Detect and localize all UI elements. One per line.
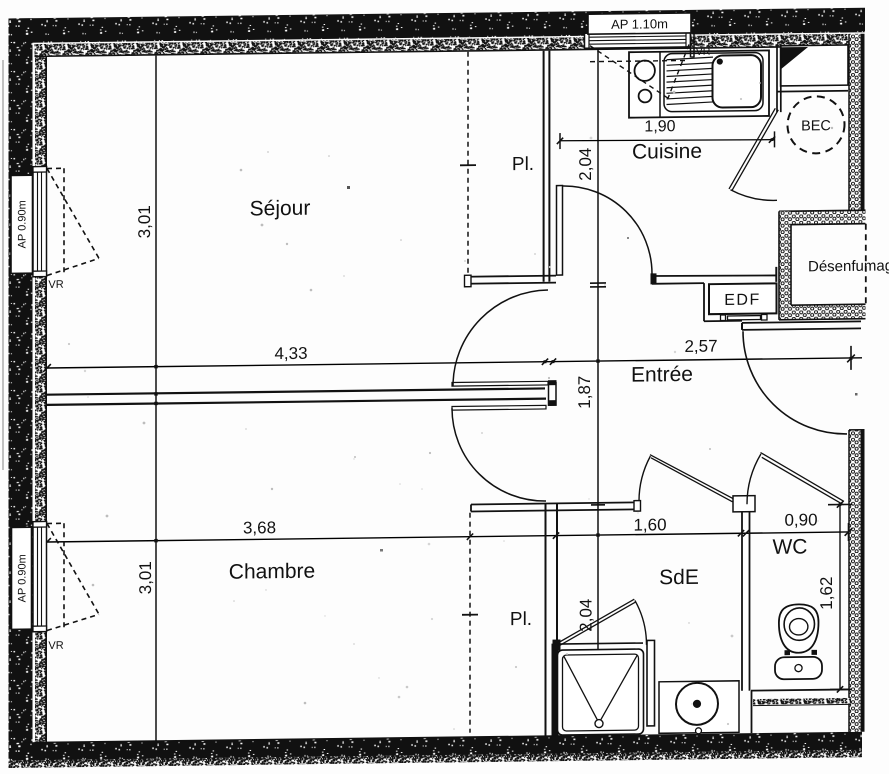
svg-text:1,90: 1,90 (644, 118, 675, 135)
svg-text:2,57: 2,57 (684, 337, 717, 356)
svg-text:AP 0.90m: AP 0.90m (17, 200, 29, 248)
svg-text:VR: VR (48, 640, 63, 652)
svg-text:1,62: 1,62 (817, 577, 836, 610)
svg-text:Chambre: Chambre (229, 560, 315, 584)
svg-text:3,01: 3,01 (136, 561, 155, 594)
svg-text:AP 1.10m: AP 1.10m (611, 16, 668, 32)
svg-text:0,90: 0,90 (784, 510, 817, 529)
svg-text:Pl.: Pl. (512, 154, 534, 175)
svg-text:BEC: BEC (801, 118, 831, 134)
svg-text:4,33: 4,33 (274, 344, 307, 363)
svg-text:Séjour: Séjour (250, 197, 311, 221)
svg-text:VR: VR (48, 279, 63, 291)
svg-text:AP 0.90m: AP 0.90m (17, 554, 29, 602)
svg-text:Entrée: Entrée (631, 363, 693, 387)
svg-text:WC: WC (773, 535, 808, 558)
svg-text:3,68: 3,68 (243, 518, 276, 537)
svg-text:Pl.: Pl. (510, 609, 532, 630)
svg-text:SdE: SdE (659, 566, 699, 589)
svg-text:Cuisine: Cuisine (632, 140, 702, 164)
svg-text:VR: VR (696, 46, 711, 58)
svg-text:3,01: 3,01 (135, 205, 154, 238)
svg-text:2,04: 2,04 (576, 148, 595, 181)
svg-text:1,87: 1,87 (575, 376, 594, 409)
svg-text:1,60: 1,60 (633, 515, 666, 534)
svg-text:EDF: EDF (724, 292, 761, 309)
svg-text:Désenfumage: Désenfumage (808, 257, 889, 275)
